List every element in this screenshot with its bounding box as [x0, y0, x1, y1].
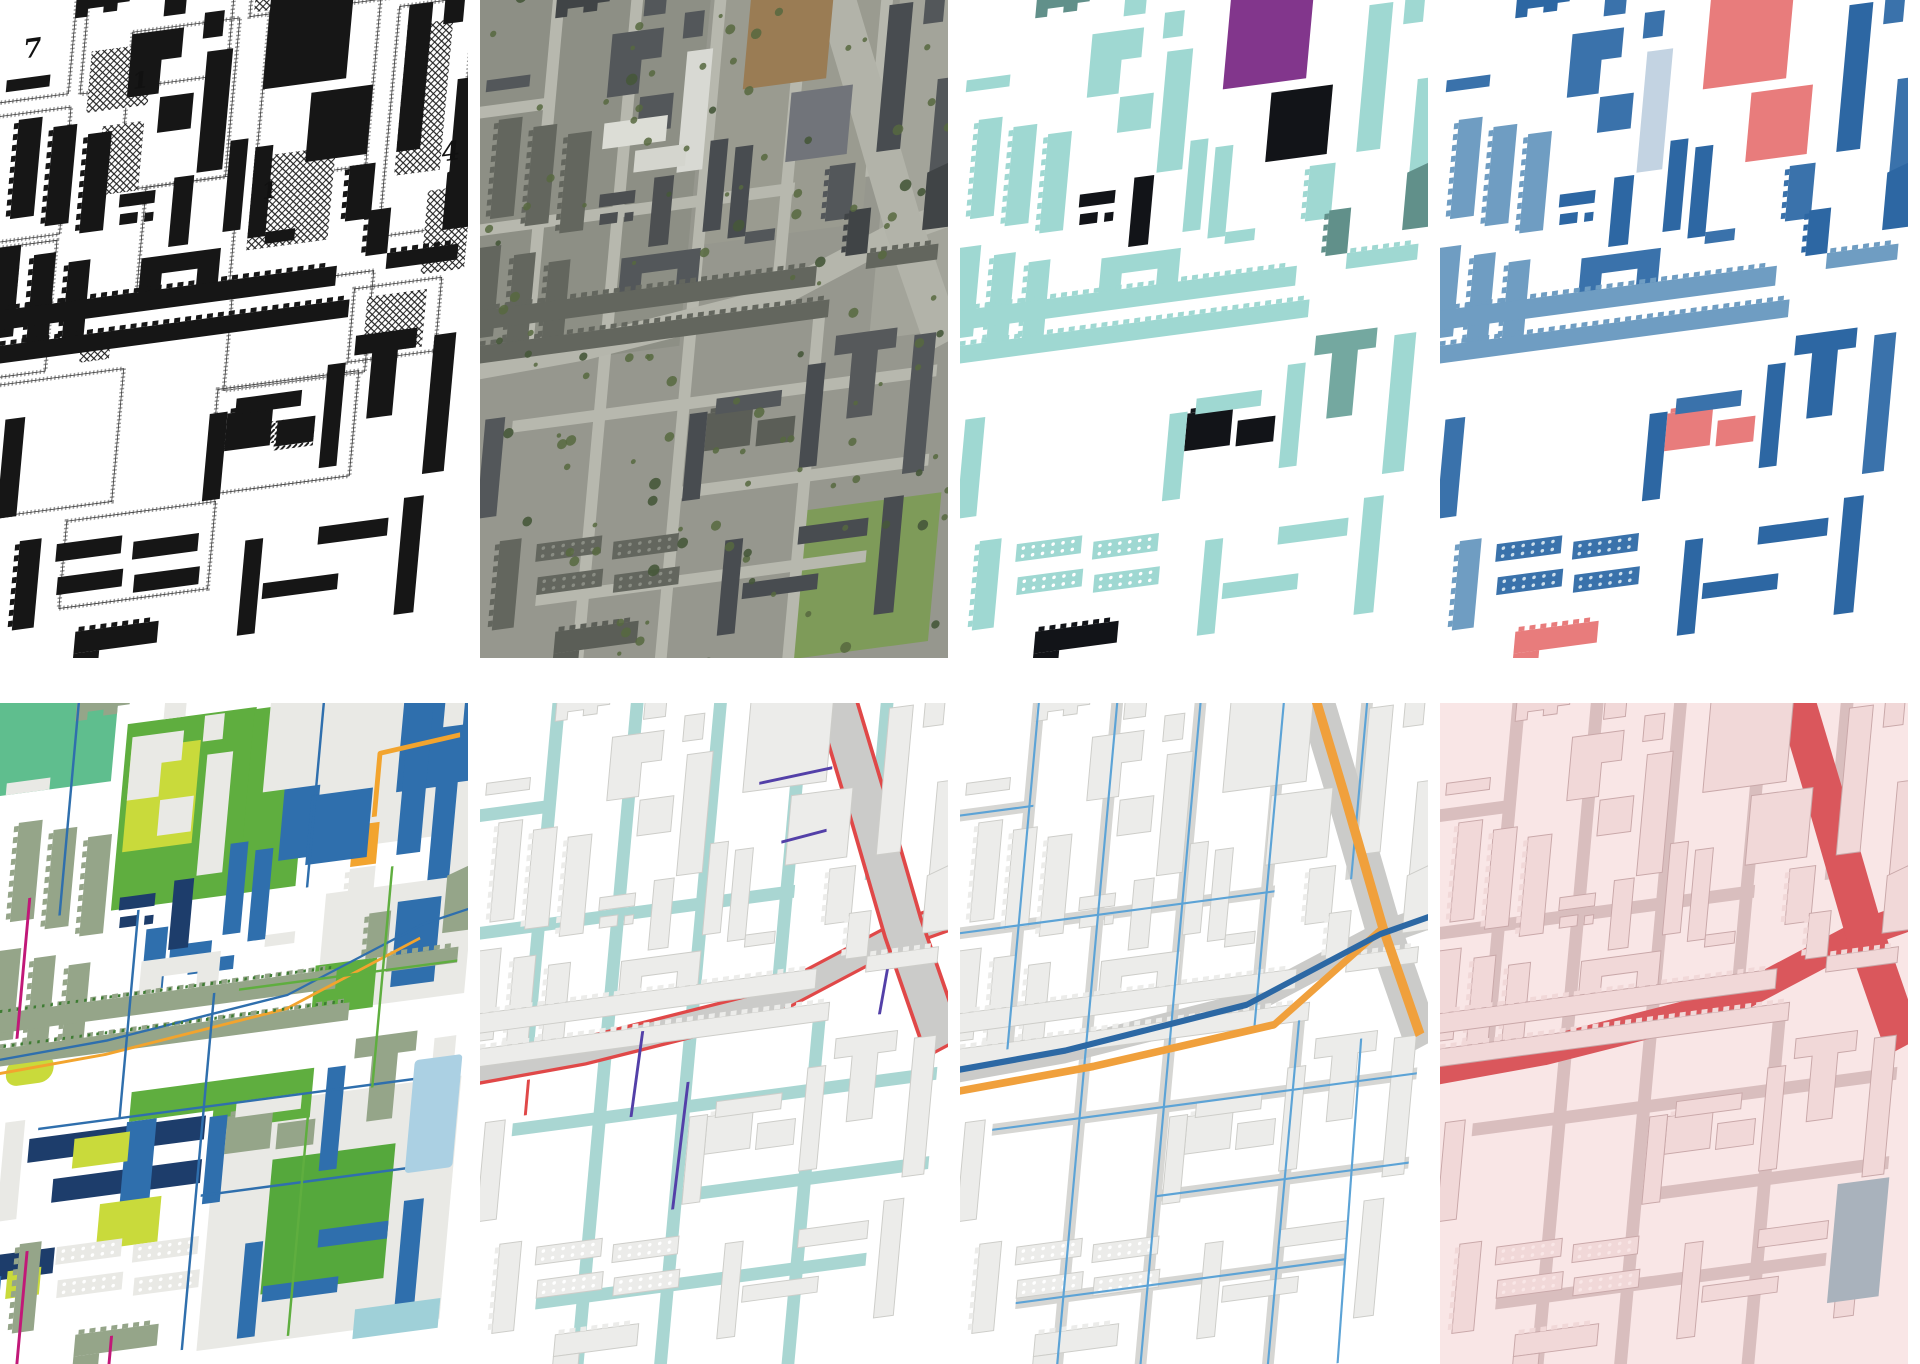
svg-text:1: 1	[131, 66, 149, 95]
panel-building-footprints-blue	[1440, 0, 1908, 658]
svg-text:7: 7	[22, 32, 43, 65]
panel-traffic-network-map	[960, 703, 1428, 1364]
panel-historic-plan-map: 7114	[0, 0, 468, 658]
svg-text:4: 4	[440, 135, 461, 168]
svg-text:1: 1	[260, 176, 278, 205]
panel-green-structure-plan	[0, 703, 468, 1364]
panel-road-network-pink-map	[1440, 703, 1908, 1364]
panel-street-network-map	[480, 703, 948, 1364]
map-panel-grid: 7114	[0, 0, 1920, 1364]
panel-building-footprints-teal	[960, 0, 1428, 658]
panel-aerial-photograph	[480, 0, 948, 658]
